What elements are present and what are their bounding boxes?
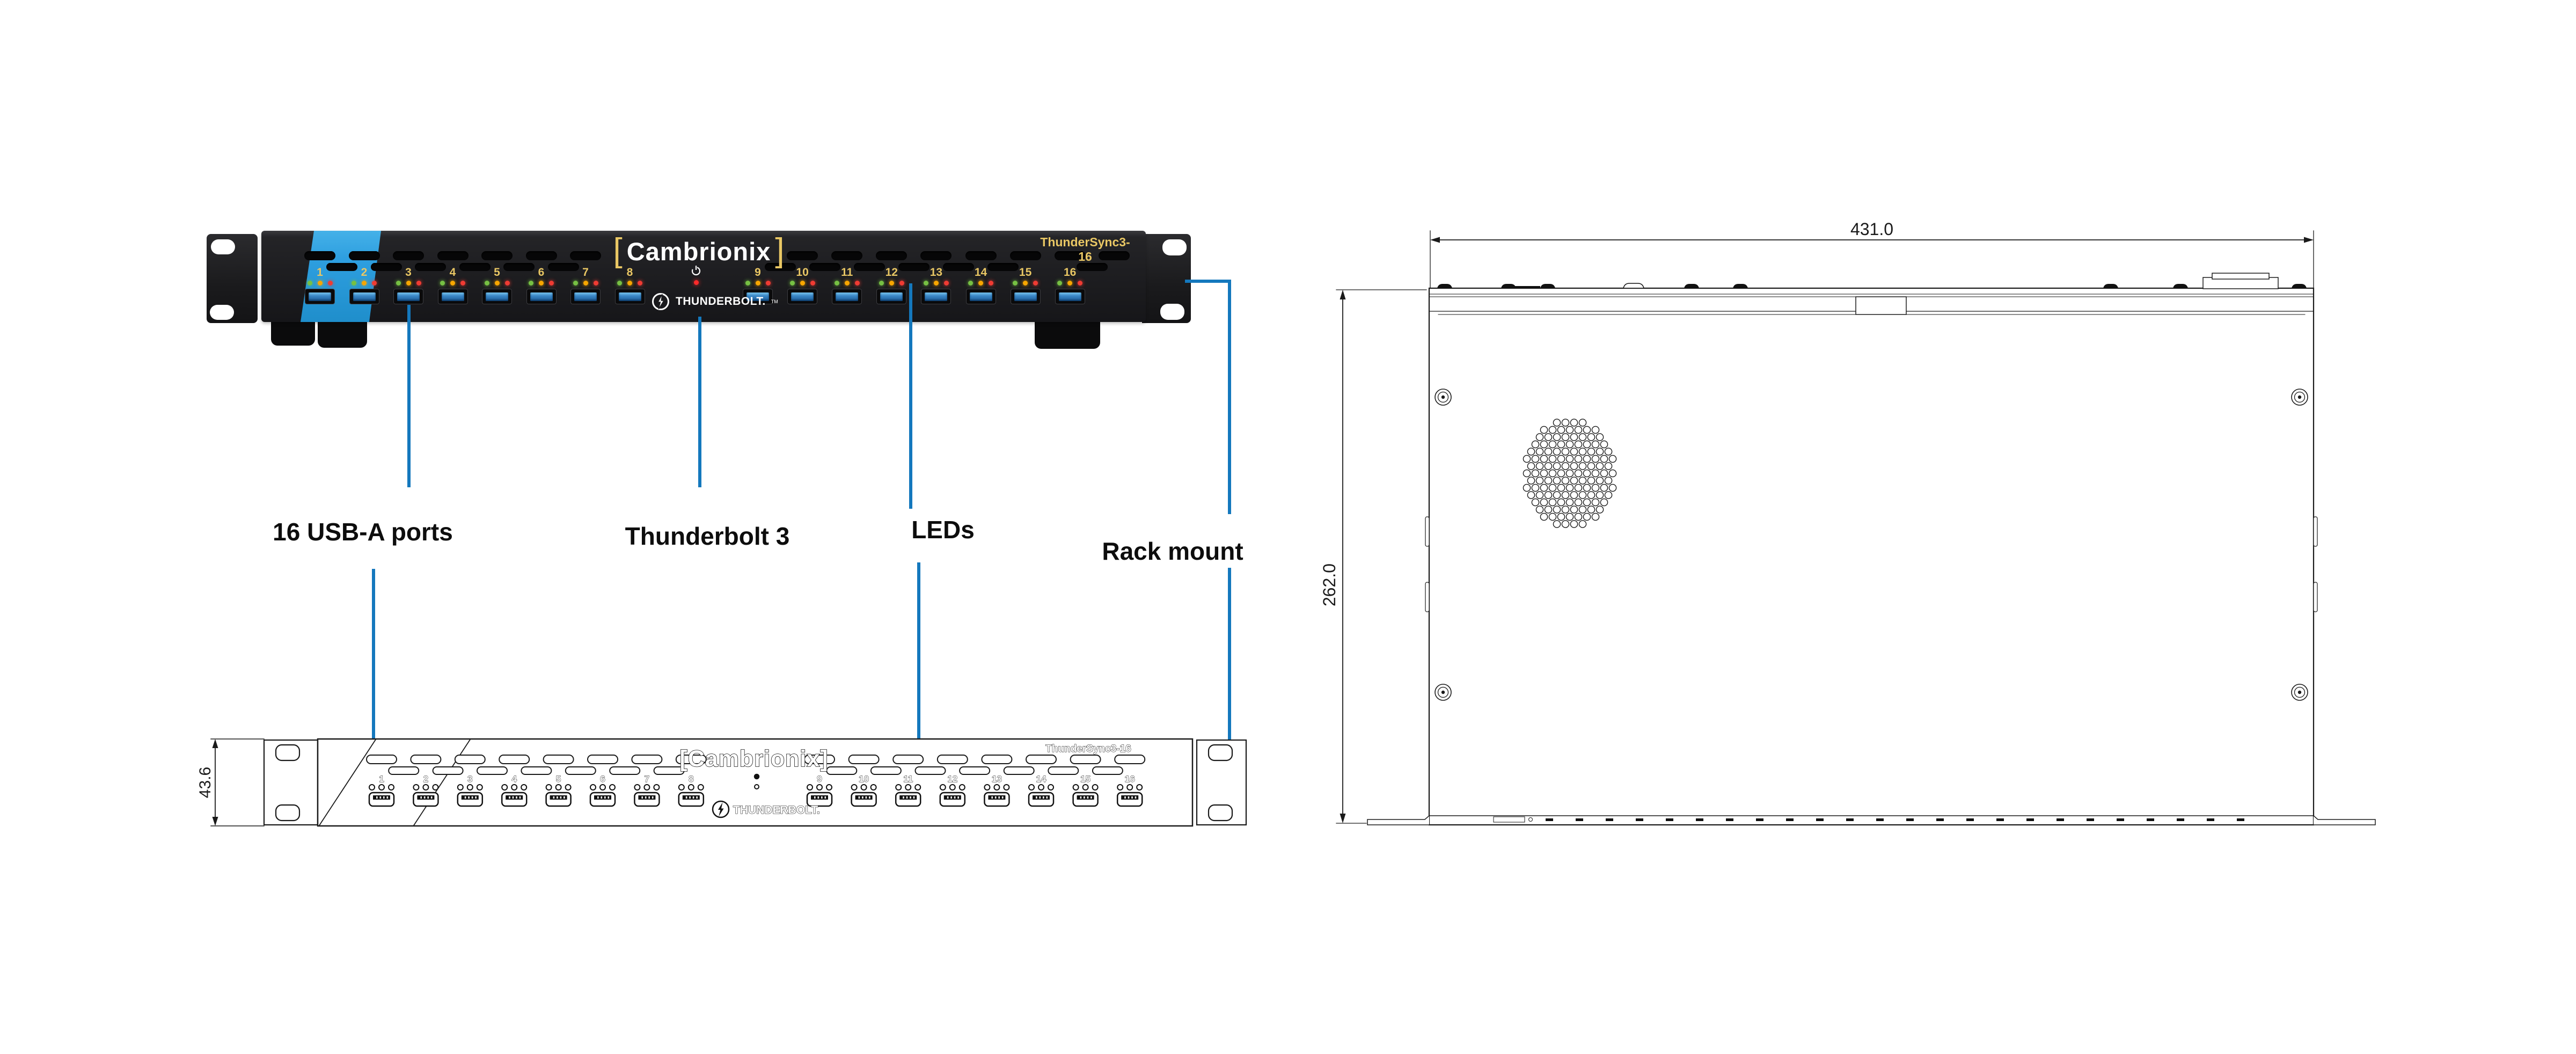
port-mark <box>2177 818 2184 821</box>
mounting-hole <box>1162 239 1187 255</box>
usb-pin <box>465 796 466 799</box>
port-number: 2 <box>423 774 428 784</box>
vent-slot <box>588 755 618 764</box>
port-number: 3 <box>467 774 472 784</box>
brand-bracket-right: ] <box>775 235 784 266</box>
led-green <box>835 281 839 286</box>
fan-hole <box>1566 513 1573 520</box>
callout-line-usb-top <box>407 305 411 487</box>
led-green <box>308 281 312 286</box>
fan-hole <box>1557 426 1564 433</box>
led-row <box>742 281 773 286</box>
led-red <box>521 785 526 790</box>
led-green <box>413 785 419 790</box>
fan-hole <box>1579 463 1586 470</box>
usb-tongue <box>880 292 903 301</box>
port-unit: 8 <box>614 266 646 304</box>
led-row <box>304 281 335 286</box>
led-green <box>617 281 622 286</box>
drawing-thunderbolt-label: THUNDERBOLT. <box>733 804 820 816</box>
fan-hole <box>1527 448 1534 455</box>
page: 12345678910111213141516 [ Cambrionix ] T… <box>0 0 2576 1054</box>
led-green <box>440 281 445 286</box>
led-amber <box>511 785 517 790</box>
fan-hole <box>1575 513 1582 520</box>
fan-hole <box>1553 521 1560 528</box>
usb-pin <box>1002 796 1004 799</box>
fan-hole <box>1557 513 1564 520</box>
vent-slot <box>544 755 574 764</box>
screw-icon <box>1435 389 1451 405</box>
led-amber <box>889 281 894 286</box>
led-red <box>416 281 421 286</box>
led-red <box>1004 785 1009 790</box>
circle <box>2298 396 2301 399</box>
port-mark <box>2237 818 2244 821</box>
fan-hole <box>1536 448 1543 455</box>
usb-port <box>966 289 996 304</box>
power-led <box>694 280 699 285</box>
led-amber <box>817 785 822 790</box>
usb-pin <box>1043 796 1044 799</box>
led-amber <box>450 281 455 286</box>
usb-tongue <box>1014 292 1037 301</box>
fan-hole <box>1545 492 1552 499</box>
brand-logo: [ Cambrionix ] <box>610 235 787 268</box>
brand-bracket-left: [ <box>613 235 622 266</box>
fan-hole <box>1605 492 1612 499</box>
thunderbolt-icon <box>651 292 670 311</box>
port-unit: 10 <box>787 266 818 304</box>
port-mark <box>1816 818 1824 821</box>
led-red <box>610 785 615 790</box>
usb-pin <box>563 796 565 799</box>
led-amber <box>1127 785 1132 790</box>
fan-hole <box>1605 477 1612 484</box>
fan-hole <box>1579 521 1586 528</box>
fan-hole <box>1557 455 1564 462</box>
usb-pin <box>869 796 870 799</box>
screw-icon <box>2292 684 2308 700</box>
usb-pin <box>608 796 610 799</box>
usb-tongue <box>574 292 597 301</box>
fan-hole <box>1562 434 1569 441</box>
fan-hole <box>1596 434 1603 441</box>
led-red <box>566 785 571 790</box>
vent-slot <box>566 767 596 774</box>
brand-text: Cambrionix <box>627 235 771 268</box>
usb-tongue <box>836 292 858 301</box>
usb-pin <box>866 796 867 799</box>
fan-hole <box>1536 492 1543 499</box>
led-green <box>1057 281 1062 286</box>
fan-hole <box>1540 484 1547 491</box>
led-amber <box>845 281 850 286</box>
led-green <box>1013 281 1018 286</box>
led-green <box>634 785 640 790</box>
usb-tongue <box>619 292 641 301</box>
fan-hole <box>1557 499 1564 506</box>
port-unit: 5 <box>481 266 513 304</box>
led-red <box>1137 785 1142 790</box>
fan-hole <box>1583 455 1590 462</box>
led-red <box>505 281 510 286</box>
back-latch <box>1856 297 1906 314</box>
callout-line-usb-bottom <box>372 569 375 753</box>
usb-port <box>876 289 906 304</box>
usb-pin <box>420 796 422 799</box>
port-mark <box>2026 818 2034 821</box>
port-number: 13 <box>992 774 1002 784</box>
led-amber <box>406 281 411 286</box>
led-red <box>944 281 949 286</box>
vent-slot <box>831 251 862 260</box>
usb-pin <box>1124 796 1126 799</box>
usb-pin <box>387 796 389 799</box>
usb-pin <box>686 796 687 799</box>
port-number: 3 <box>393 266 424 279</box>
vent-slot <box>826 767 857 774</box>
usb-pin <box>903 796 904 799</box>
port-number: 5 <box>481 266 513 279</box>
usb-port <box>1055 289 1085 304</box>
port-unit: 11 <box>831 266 862 304</box>
port-number: 10 <box>787 266 818 279</box>
port-number: 16 <box>1055 266 1086 279</box>
vent-slot <box>481 251 513 260</box>
port-mark <box>1636 818 1643 821</box>
fan-hole <box>1540 426 1547 433</box>
led-row <box>787 281 818 286</box>
fan-hole <box>1605 463 1612 470</box>
back-tab <box>2292 284 2307 288</box>
led-amber <box>1038 785 1044 790</box>
usb-pin <box>825 796 826 799</box>
port-unit: 7 <box>570 266 601 304</box>
fan-hole <box>1540 499 1547 506</box>
fan-hole <box>1575 499 1582 506</box>
led-green <box>1029 785 1034 790</box>
vent-slot <box>920 251 952 260</box>
mounting-hole <box>276 805 299 821</box>
back-edge-tabs <box>1437 283 2307 288</box>
fan-hole <box>1562 521 1569 528</box>
port-number: 12 <box>947 774 957 784</box>
vent-slot <box>960 767 990 774</box>
usb-pin <box>1131 796 1133 799</box>
fan-hole <box>1540 513 1547 520</box>
fan-hole <box>1579 434 1586 441</box>
usb-pin <box>821 796 823 799</box>
back-tab <box>1684 284 1699 288</box>
usb-pin <box>648 796 650 799</box>
fan-hole <box>1557 470 1564 477</box>
callout-line-rack-top <box>1228 280 1231 514</box>
led-red <box>915 785 920 790</box>
fan-hole <box>1596 448 1603 455</box>
mounting-hole <box>276 745 299 760</box>
led-green <box>396 281 401 286</box>
led-amber <box>994 785 999 790</box>
fan-hole <box>1549 484 1556 491</box>
trademark: TM <box>771 299 778 304</box>
usb-port <box>615 289 645 304</box>
fan-hole <box>1570 477 1577 484</box>
fan-hole <box>1596 492 1603 499</box>
fan-hole <box>1609 455 1616 462</box>
fan-hole <box>1592 484 1599 491</box>
fan-hole <box>1549 426 1556 433</box>
vent-slot <box>871 767 901 774</box>
callout-label-leds: LEDs <box>911 515 975 544</box>
led-red <box>871 785 876 790</box>
led-amber <box>362 281 367 286</box>
fan-hole <box>1605 448 1612 455</box>
port-number: 10 <box>859 774 869 784</box>
led-row <box>570 281 601 286</box>
callout-line-rack-elbow <box>1185 280 1231 283</box>
fan-hole <box>1600 484 1607 491</box>
led-red <box>389 785 394 790</box>
led-amber <box>1023 281 1028 286</box>
led-red <box>810 281 815 286</box>
port-unit: 1 <box>304 266 335 304</box>
power-indicator <box>688 265 704 285</box>
usb-pin <box>557 796 558 799</box>
vent-slot <box>1004 767 1034 774</box>
back-tab <box>2103 284 2118 288</box>
led-green <box>790 281 795 286</box>
callout-label-rack: Rack mount <box>1102 537 1243 566</box>
usb-pin <box>910 796 911 799</box>
led-amber <box>318 281 323 286</box>
fan-hole <box>1562 506 1569 513</box>
usb-pin <box>652 796 654 799</box>
vent-slot <box>1026 755 1056 764</box>
port-mark <box>1576 818 1583 821</box>
led-green <box>458 785 463 790</box>
fan-hole <box>1575 455 1582 462</box>
fan-hole <box>1536 463 1543 470</box>
led-amber <box>978 281 983 286</box>
fan-hole <box>1557 484 1564 491</box>
led-red <box>855 281 860 286</box>
fan-hole <box>1566 484 1573 491</box>
led-red <box>372 281 377 286</box>
fan-hole <box>1575 470 1582 477</box>
usb-port <box>787 289 817 304</box>
fan-hole <box>1579 492 1586 499</box>
usb-tongue <box>397 292 420 301</box>
usb-pin <box>376 796 378 799</box>
port-number: 4 <box>437 266 469 279</box>
fan-hole <box>1600 455 1607 462</box>
led-red <box>766 281 771 286</box>
fan-hole <box>1579 448 1586 455</box>
usb-port <box>393 289 423 304</box>
drawing-model-label: ThunderSync3-16 <box>1045 743 1131 755</box>
mounting-hole <box>1209 745 1232 760</box>
port-mark <box>1756 818 1763 821</box>
port-unit: 3 <box>393 266 424 304</box>
fan-hole <box>1592 499 1599 506</box>
port-number: 9 <box>817 774 822 784</box>
screw-icon <box>2292 389 2308 405</box>
led-red <box>1048 785 1053 790</box>
led-red <box>989 281 993 286</box>
port-number: 14 <box>1036 774 1046 784</box>
led-row <box>393 281 424 286</box>
led-red <box>328 281 333 286</box>
usb-pin <box>954 796 956 799</box>
led-red <box>698 785 704 790</box>
led-red <box>654 785 659 790</box>
usb-pin <box>998 796 1000 799</box>
fan-hole <box>1587 434 1594 441</box>
vent-slot <box>349 251 380 260</box>
port-unit: 14 <box>965 266 997 304</box>
vent-slot <box>1071 755 1101 764</box>
usb-tongue <box>925 292 947 301</box>
port-mark <box>1546 818 1553 821</box>
led-row <box>920 281 952 286</box>
led-amber <box>627 281 632 286</box>
usb-pin <box>906 796 908 799</box>
fan-hole <box>1592 426 1599 433</box>
vent-slot <box>982 755 1012 764</box>
fan-hole <box>1553 434 1560 441</box>
port-number: 7 <box>645 774 649 784</box>
port-mark <box>2207 818 2214 821</box>
usb-pin <box>693 796 694 799</box>
back-tab <box>1513 286 1540 288</box>
usb-pin <box>427 796 429 799</box>
vent-slot <box>916 767 946 774</box>
usb-pin <box>383 796 385 799</box>
usb-tongue <box>970 292 992 301</box>
port-mark <box>1996 818 2004 821</box>
fan-hole <box>1575 426 1582 433</box>
vent-slot <box>367 755 397 764</box>
led-green <box>590 785 596 790</box>
usb-pin <box>516 796 517 799</box>
fan-hole <box>1570 419 1577 426</box>
fan-hole <box>1532 455 1539 462</box>
fan-hole <box>1536 434 1543 441</box>
usb-port <box>349 289 379 304</box>
led-row <box>614 281 646 286</box>
port-number: 13 <box>920 266 952 279</box>
led-red <box>1093 785 1098 790</box>
vent-slot <box>389 767 419 774</box>
led-amber <box>800 281 805 286</box>
led-row <box>481 281 513 286</box>
usb-pin <box>380 796 382 799</box>
usb-pin <box>859 796 860 799</box>
dimension-width: 431.0 <box>1430 219 2314 293</box>
fan-hole <box>1549 455 1556 462</box>
port-number: 12 <box>876 266 907 279</box>
led-green <box>924 281 928 286</box>
fan-hole <box>1523 470 1530 477</box>
port-unit: 13 <box>920 266 952 304</box>
port-number: 11 <box>903 774 913 784</box>
port-number: 1 <box>379 774 384 784</box>
fan-hole <box>1545 463 1552 470</box>
usb-pin <box>913 796 915 799</box>
fan-hole <box>1562 419 1569 426</box>
led-green <box>984 785 990 790</box>
usb-pin <box>947 796 949 799</box>
fan-hole <box>1549 513 1556 520</box>
callout-line-rack-bottom <box>1228 568 1231 747</box>
fan-hole <box>1545 434 1552 441</box>
fan-hole <box>1575 441 1582 448</box>
led-green <box>807 785 813 790</box>
led-amber <box>950 785 955 790</box>
usb-pin <box>641 796 643 799</box>
port-mark <box>2057 818 2064 821</box>
usb-tongue <box>353 292 376 301</box>
fan-hole <box>1549 441 1556 448</box>
fan-hole <box>1553 477 1560 484</box>
port-unit: 12 <box>876 266 907 304</box>
led-amber <box>379 785 384 790</box>
dimension-height-label: 43.6 <box>199 767 214 798</box>
vent-slot <box>304 251 335 260</box>
fan-hole <box>1553 492 1560 499</box>
usb-tongue <box>1059 292 1081 301</box>
fan-hole <box>1545 448 1552 455</box>
led-green <box>745 281 750 286</box>
usb-port <box>526 289 557 304</box>
led-row <box>1055 281 1086 286</box>
led-green <box>529 281 533 286</box>
port-unit: 4 <box>437 266 469 304</box>
callout-label-thunderbolt: Thunderbolt 3 <box>625 522 790 551</box>
usb-pin <box>472 796 473 799</box>
fan-hole <box>1592 470 1599 477</box>
back-connector-tab <box>2203 273 2278 289</box>
vent-slot <box>521 767 551 774</box>
fan-hole <box>1579 419 1586 426</box>
callout-label-usb: 16 USB-A ports <box>273 517 453 546</box>
fan-hole <box>1587 448 1594 455</box>
port-unit: 16 <box>1055 266 1086 304</box>
led-amber <box>556 785 561 790</box>
port-mark <box>2147 818 2154 821</box>
usb-pin <box>1087 796 1089 799</box>
port-number: 5 <box>556 774 561 784</box>
fan-hole <box>1553 463 1560 470</box>
fan-hole <box>1527 463 1534 470</box>
fan-hole <box>1527 477 1534 484</box>
led-amber <box>600 785 605 790</box>
usb-pin <box>957 796 959 799</box>
port-number: 15 <box>1010 266 1041 279</box>
usb-pin <box>519 796 521 799</box>
fan-hole <box>1566 470 1573 477</box>
fan-hole <box>1523 455 1530 462</box>
led-red <box>460 281 465 286</box>
fan-hole <box>1596 463 1603 470</box>
led-red <box>960 785 965 790</box>
usb-pin <box>862 796 863 799</box>
fan-hole <box>1523 484 1530 491</box>
led-row <box>526 281 557 286</box>
drawing-chassis <box>1429 288 2314 825</box>
led-amber <box>644 785 649 790</box>
